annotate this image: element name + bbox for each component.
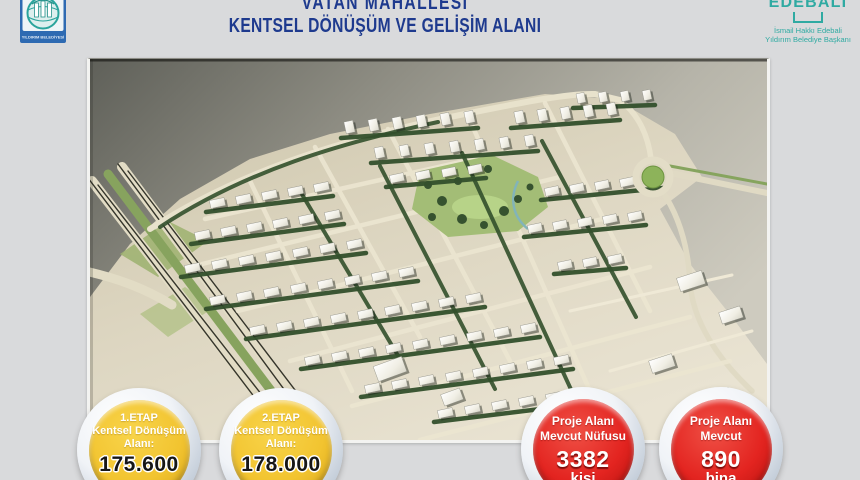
badge-line: Mevcut [671, 429, 772, 444]
badge-etap2-face: 2.ETAP Kentsel Dönüşüm Alanı: 178.000 [231, 400, 332, 480]
page-title: VATAN MAHALLESİ KENTSEL DÖNÜŞÜM VE GELİŞ… [85, 0, 686, 38]
badge-etap1-face: 1.ETAP Kentsel Dönüşüm Alanı: 175.600 [89, 400, 190, 480]
page-title-line2: KENTSEL DÖNÜŞÜM VE GELİŞİM ALANI [85, 15, 686, 38]
badge-line: Kentsel Dönüşüm [89, 425, 190, 438]
badge-value: 178.000 [231, 453, 332, 477]
city-render-illustration [90, 59, 767, 440]
mayor-signature: EDEBALI İsmail Hakkı Edebali Yıldırım Be… [752, 0, 860, 44]
mayor-subtitle-1: İsmail Hakkı Edebali [752, 26, 860, 35]
badge-line: Proje Alanı [533, 414, 634, 429]
badge-value: 890 [671, 447, 772, 471]
badge-value: 3382 [533, 447, 634, 471]
logo-label: YILDIRIM BELEDİYESİ [22, 35, 64, 40]
badge-line: Kentsel Dönüşüm [231, 425, 332, 438]
badge-line: 2.ETAP [231, 412, 332, 425]
badge-value: 175.600 [89, 453, 190, 477]
mayor-name: EDEBALI [752, 0, 860, 10]
badge-unit: bina [671, 471, 772, 480]
municipality-logo: YILDIRIM BELEDİYESİ [20, 0, 66, 43]
slide: YILDIRIM BELEDİYESİ VATAN MAHALLESİ KENT… [0, 0, 860, 480]
badge-line: 1.ETAP [89, 412, 190, 425]
page-title-line1: VATAN MAHALLESİ [85, 0, 686, 15]
badge-unit: kişi [533, 471, 634, 480]
render-frame [87, 58, 770, 443]
badge-line: Alanı: [231, 438, 332, 451]
signature-bracket-icon [793, 12, 823, 23]
municipality-logo-icon: YILDIRIM BELEDİYESİ [20, 0, 66, 43]
badge-line: Proje Alanı [671, 414, 772, 429]
badge-buildings-face: Proje Alanı Mevcut 890 bina [671, 399, 772, 480]
badge-line: Mevcut Nüfusu [533, 429, 634, 444]
mayor-subtitle-2: Yıldırım Belediye Başkanı [752, 35, 860, 44]
badge-line: Alanı: [89, 438, 190, 451]
render-top-edge [90, 59, 767, 62]
render-left-vignette [90, 59, 93, 440]
badge-population-face: Proje Alanı Mevcut Nüfusu 3382 kişi [533, 399, 634, 480]
